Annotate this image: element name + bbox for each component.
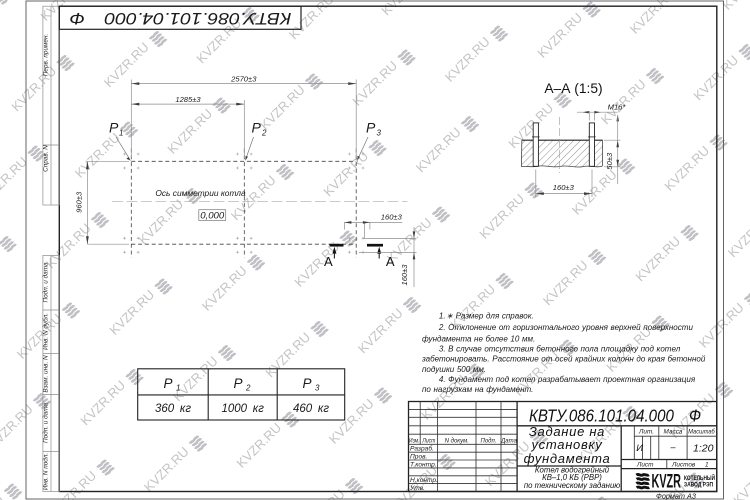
svg-text:1285±3: 1285±3 [175,95,201,104]
svg-text:KVZR.RU: KVZR.RU [135,196,186,247]
svg-text:KVZR.RU: KVZR.RU [540,257,591,308]
svg-text:KVZR.RU: KVZR.RU [170,353,221,404]
svg-text:KVZR.RU: KVZR.RU [413,124,464,175]
svg-text:Р: Р [302,376,311,391]
svg-text:Р: Р [163,376,172,391]
svg-text:по нагрузкам на фундамент.: по нагрузкам на фундамент. [422,385,533,394]
svg-text:KVZR.RU: KVZR.RU [349,58,400,109]
svg-text:Т.контр.: Т.контр. [410,461,437,468]
svg-text:KVZR: KVZR [652,471,682,493]
svg-text:подушки 500 мм.: подушки 500 мм. [422,365,486,374]
svg-text:фундамента: фундамента [524,451,611,466]
svg-text:KVZR.RU: KVZR.RU [199,263,250,314]
svg-text:1:20: 1:20 [693,443,714,455]
svg-text:KVZR.RU: KVZR.RU [262,329,313,380]
svg-text:КОТЕЛЬНЫЙ: КОТЕЛЬНЫЙ [684,474,715,482]
svg-text:3: 3 [377,129,382,138]
svg-text:Листов: Листов [671,462,696,469]
svg-text:1000 кг: 1000 кг [221,403,264,415]
svg-text:KVZR.RU: KVZR.RU [0,244,1,295]
svg-text:Утв.: Утв. [409,485,425,492]
svg-text:И: И [636,443,643,454]
svg-text:А: А [386,254,395,269]
svg-text:Р: Р [233,376,242,391]
svg-text:ЗАВОД РЭП: ЗАВОД РЭП [684,483,713,489]
svg-text:KVZR.RU: KVZR.RU [0,492,7,500]
svg-text:KVZR.RU: KVZR.RU [141,444,192,495]
svg-text:4. Фундамент под котел разраба: 4. Фундамент под котел разрабатывает про… [439,375,696,384]
svg-text:160±3: 160±3 [381,213,403,222]
svg-text:1: 1 [705,462,709,469]
svg-text:М16*: М16* [608,102,627,111]
svg-text:KVZR.RU: KVZR.RU [101,39,152,90]
svg-text:KVZR.RU: KVZR.RU [0,401,36,452]
svg-text:KVZR.RU: KVZR.RU [355,305,406,356]
svg-text:2570±3: 2570±3 [230,75,257,84]
svg-text:460 кг: 460 кг [293,403,329,415]
svg-text:Р: Р [252,119,262,135]
svg-text:3: 3 [315,384,320,393]
svg-text:KVZR.RU: KVZR.RU [43,220,94,271]
svg-text:1: 1 [176,384,180,393]
svg-text:360 кг: 360 кг [155,403,191,415]
svg-text:Разраб.: Разраб. [410,445,434,453]
svg-text:KVZR.RU: KVZR.RU [696,300,747,351]
svg-text:А: А [324,254,333,269]
svg-text:Н.контр.: Н.контр. [410,477,438,484]
svg-text:KVZR.RU: KVZR.RU [320,148,371,199]
svg-text:Лит.: Лит. [638,429,654,436]
svg-text:1. ∗ Размер для справок.: 1. ∗ Размер для справок. [439,312,534,321]
svg-text:KVZR.RU: KVZR.RU [297,486,348,500]
svg-text:KVZR.RU: KVZR.RU [8,63,59,114]
svg-text:KVZR.RU: KVZR.RU [14,311,65,362]
svg-text:960±3: 960±3 [74,191,83,213]
svg-text:КВТУ.086.101.04.000 Ф: КВТУ.086.101.04.000 Ф [529,405,701,425]
svg-text:Ось симметрии котла: Ось симметрии котла [155,188,246,198]
svg-text:2: 2 [245,384,251,393]
svg-text:Инв. N подл.: Инв. N подл. [42,453,50,490]
svg-text:KVZR.RU: KVZR.RU [442,34,493,85]
svg-text:забетонировать. Расстояние от: забетонировать. Расстояние от осей крайн… [421,355,706,364]
svg-text:Инв. N дубл.: Инв. N дубл. [42,313,50,350]
svg-text:Р: Р [109,119,119,135]
svg-text:KVZR.RU: KVZR.RU [661,143,712,194]
svg-text:KVZR.RU: KVZR.RU [233,420,284,471]
svg-text:KVZR.RU: KVZR.RU [77,377,128,428]
svg-text:установку: установку [530,437,603,452]
svg-text:KVZR.RU: KVZR.RU [632,233,683,284]
svg-text:KVZR.RU: KVZR.RU [725,209,750,260]
svg-text:фундамента не более 10 мм.: фундамента не более 10 мм. [422,334,535,343]
svg-text:Взам. инв. N: Взам. инв. N [43,355,50,393]
svg-text:Лист: Лист [636,462,654,469]
svg-text:Р: Р [366,119,376,135]
svg-text:3. В случае отсутствия бетонно: 3. В случае отсутствия бетонного пола пл… [439,345,681,354]
svg-text:Дата: Дата [500,438,517,444]
svg-text:KVZR.RU: KVZR.RU [257,82,308,133]
svg-text:Подп. и дата: Подп. и дата [42,262,50,302]
svg-text:Формат А3: Формат А3 [656,491,696,500]
svg-text:KVZR.RU: KVZR.RU [106,287,157,338]
svg-text:Перв. примен.: Перв. примен. [43,34,50,76]
svg-text:KVZR.RU: KVZR.RU [730,457,750,500]
svg-text:Подп. и дата: Подп. и дата [42,403,50,443]
svg-text:160±3: 160±3 [400,264,409,286]
svg-text:КВТУ.086.101.04.000 Ф: КВТУ.086.101.04.000 Ф [70,9,292,27]
svg-text:KVZR.RU: KVZR.RU [48,468,99,500]
svg-text:Масштаб: Масштаб [688,428,715,436]
svg-text:N докум.: N докум. [445,438,469,444]
svg-text:KVZR.RU: KVZR.RU [534,10,585,61]
svg-text:160±3: 160±3 [553,183,575,192]
svg-text:Справ. N: Справ. N [43,145,50,172]
svg-text:KVZR.RU: KVZR.RU [476,191,527,242]
svg-text:1: 1 [119,129,123,138]
svg-text:KVZR.RU: KVZR.RU [378,0,429,18]
svg-text:50±3: 50±3 [605,152,614,170]
svg-text:0,000: 0,000 [200,211,225,222]
svg-text:Пров.: Пров. [410,454,428,461]
svg-text:KVZR.RU: KVZR.RU [164,106,215,157]
svg-text:А–А (1:5): А–А (1:5) [544,81,602,96]
svg-text:KVZR.RU: KVZR.RU [326,396,377,447]
svg-text:2. Отклонение от горизонтально: 2. Отклонение от горизонтального уровня … [438,323,694,332]
svg-text:Лист: Лист [422,438,436,444]
svg-text:KVZR.RU: KVZR.RU [569,167,620,218]
svg-text:Изм.: Изм. [409,438,420,444]
svg-text:KVZR.RU: KVZR.RU [72,130,123,181]
svg-text:KVZR.RU: KVZR.RU [690,52,741,103]
svg-text:по техническому заданию: по техническому заданию [524,481,620,490]
svg-text:Масса: Масса [664,429,683,436]
svg-text:–: – [670,442,677,452]
svg-text:2: 2 [261,129,267,138]
svg-text:Подп.: Подп. [481,438,497,444]
